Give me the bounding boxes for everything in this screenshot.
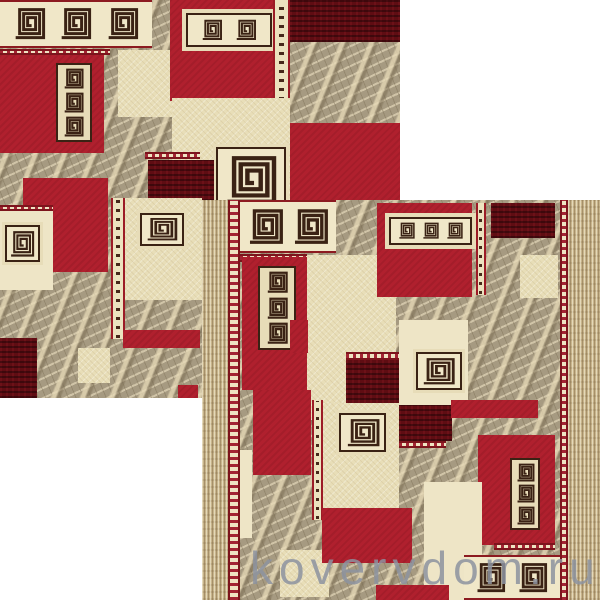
carpet-block-cream bbox=[240, 450, 252, 538]
greek-key-spiral-icon bbox=[63, 68, 84, 89]
greek-key-spiral-icon bbox=[345, 418, 381, 447]
carpet-block-red bbox=[123, 330, 200, 348]
carpet-block-band bbox=[240, 200, 336, 253]
carpet-fringe-border-left bbox=[202, 200, 228, 600]
greek-key-spiral-icon bbox=[421, 357, 456, 386]
greek-key-spiral-icon bbox=[201, 19, 223, 41]
carpet-block-maroon bbox=[346, 360, 399, 405]
carpet-block-creamtex bbox=[118, 50, 178, 118]
carpet-block-bandstrip bbox=[186, 13, 272, 47]
carpet-block-maroon bbox=[399, 405, 452, 441]
greek-key-spiral-icon bbox=[63, 116, 84, 137]
carpet-block-motif3 bbox=[510, 458, 540, 530]
greek-key-spiral-icon bbox=[516, 484, 535, 503]
carpet-block-motif1 bbox=[416, 352, 462, 390]
carpet-block-bandstrip bbox=[389, 217, 472, 245]
greek-key-spiral-icon bbox=[266, 297, 288, 319]
greek-key-spiral-icon bbox=[516, 463, 535, 482]
carpet-block-stripv bbox=[476, 203, 487, 295]
carpet-block-maroon bbox=[0, 338, 37, 398]
carpet-fringe-border-right bbox=[568, 200, 600, 600]
carpet-block-motif3 bbox=[56, 63, 92, 143]
carpet-block-creamtex bbox=[78, 348, 110, 383]
carpet-block-motif1 bbox=[339, 413, 386, 452]
greek-key-spiral-icon bbox=[13, 7, 46, 40]
greek-key-spiral-icon bbox=[223, 154, 278, 206]
carpet-block-maroon bbox=[491, 203, 556, 238]
carpet-block-stripv bbox=[111, 198, 125, 339]
greek-key-spiral-icon bbox=[446, 222, 463, 239]
greek-key-spiral-icon bbox=[266, 271, 288, 293]
carpet-block-red bbox=[290, 320, 308, 353]
greek-key-spiral-icon bbox=[247, 208, 284, 245]
greek-key-spiral-icon bbox=[59, 7, 92, 40]
greek-key-spiral-icon bbox=[106, 7, 139, 40]
product-photo-collage: kovervdom.ru bbox=[0, 0, 600, 600]
greek-key-spiral-icon bbox=[9, 230, 35, 258]
carpet-guard-stripe-left bbox=[228, 200, 240, 600]
carpet-block-motif1 bbox=[5, 225, 40, 262]
carpet-guard-stripe-right bbox=[560, 200, 568, 600]
greek-key-spiral-icon bbox=[398, 222, 415, 239]
greek-key-spiral-icon bbox=[516, 506, 535, 525]
carpet-block-red bbox=[178, 385, 198, 398]
carpet-block-creamtex bbox=[520, 255, 558, 298]
carpet-block-maroon bbox=[148, 160, 214, 201]
greek-key-spiral-icon bbox=[63, 92, 84, 113]
greek-key-spiral-icon bbox=[145, 217, 179, 241]
carpet-block-guardh bbox=[0, 205, 53, 211]
carpet-block-motif1 bbox=[140, 213, 184, 246]
watermark-text: kovervdom.ru bbox=[250, 541, 600, 595]
carpet-block-stripv bbox=[312, 400, 323, 520]
carpet-field bbox=[240, 200, 560, 600]
carpet-block-stripv bbox=[273, 0, 290, 101]
greek-key-spiral-icon bbox=[422, 222, 439, 239]
carpet-photo-front bbox=[202, 200, 600, 600]
greek-key-spiral-icon bbox=[266, 322, 288, 344]
carpet-block-guardh bbox=[346, 352, 399, 360]
carpet-block-band bbox=[0, 0, 152, 48]
carpet-block-red bbox=[451, 400, 537, 418]
carpet-block-guardh bbox=[145, 152, 200, 159]
greek-key-spiral-icon bbox=[235, 19, 257, 41]
carpet-block-maroon bbox=[290, 0, 400, 42]
greek-key-spiral-icon bbox=[292, 208, 329, 245]
carpet-block-guardh bbox=[399, 441, 446, 448]
carpet-block-red bbox=[253, 390, 312, 475]
